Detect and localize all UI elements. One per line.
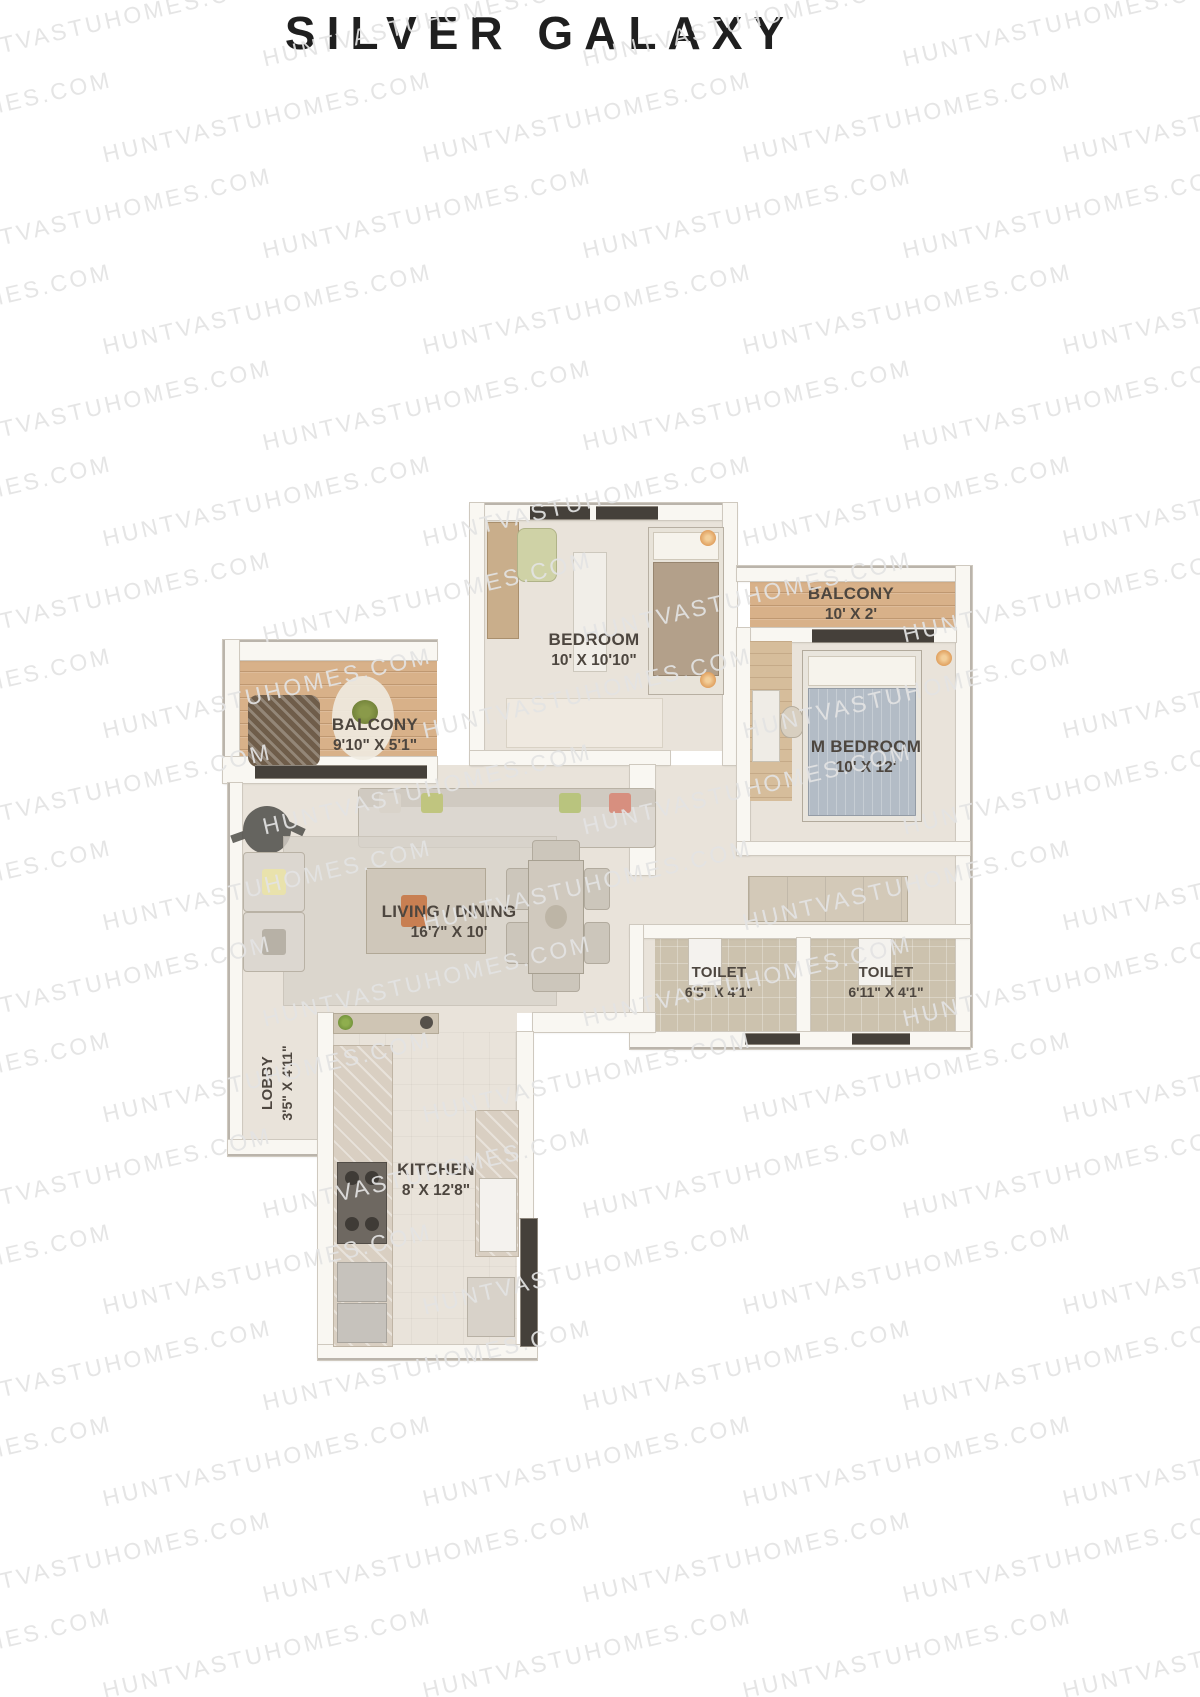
wall <box>318 1345 537 1360</box>
wall <box>737 628 750 855</box>
window-strip <box>812 629 934 643</box>
watermark-text: HUNTVASTUHOMES.COM <box>260 1506 595 1608</box>
lamp <box>700 672 716 688</box>
watermark-text: HUNTVASTUHOMES.COM <box>0 1506 275 1608</box>
desk <box>752 690 780 762</box>
room-name: BEDROOM <box>549 629 640 651</box>
watermark-text: HUNTVASTUHOMES.COM <box>0 162 275 264</box>
watermark-text: HUNTVASTUHOMES.COM <box>260 162 595 264</box>
pillows <box>808 656 916 686</box>
watermark-text: HUNTVASTUHOMES.COM <box>1060 450 1200 552</box>
armchair <box>517 528 557 582</box>
lamp <box>700 530 716 546</box>
watermark-text: HUNTVASTUHOMES.COM <box>1060 834 1200 936</box>
room-label-kitchen: KITCHEN 8' X 12'8" <box>397 1159 475 1201</box>
kitchen-sink <box>479 1178 517 1252</box>
kitchen-entry-counter <box>333 1013 439 1034</box>
pillow <box>262 869 286 895</box>
window-strip <box>520 1218 538 1347</box>
wall <box>470 503 484 765</box>
refrigerator <box>467 1277 515 1337</box>
watermark-text: HUNTVASTUHOMES.COM <box>0 1602 115 1697</box>
wall <box>517 1032 533 1218</box>
room-label-living-dining: LIVING / DINING 16'7" X 10' <box>382 901 517 943</box>
room-name: LIVING / DINING <box>382 901 517 923</box>
room-label-balcony-top: BALCONY 10' X 2' <box>808 583 894 625</box>
wall <box>737 566 970 581</box>
watermark-text: HUNTVASTUHOMES.COM <box>1060 66 1200 168</box>
watermark-text: HUNTVASTUHOMES.COM <box>0 1026 115 1128</box>
watermark-text: HUNTVASTUHOMES.COM <box>1060 258 1200 360</box>
watermark-text: HUNTVASTUHOMES.COM <box>580 354 915 456</box>
room-dims: 6'5" X 4'1" <box>685 983 753 1001</box>
room-label-toilet-right: TOILET 6'11" X 4'1" <box>848 963 923 1001</box>
watermark-text: HUNTVASTUHOMES.COM <box>900 162 1200 264</box>
page-title: SILVER GALAXY <box>0 6 1080 60</box>
room-dims: 10' X 12' <box>811 758 921 778</box>
table-deco <box>545 905 567 929</box>
burner <box>365 1171 379 1185</box>
kitchen-entry-floor <box>437 1013 517 1032</box>
burner <box>345 1217 359 1231</box>
kitchen-cabinet <box>337 1303 387 1343</box>
watermark-text: HUNTVASTUHOMES.COM <box>740 1410 1075 1512</box>
wall <box>470 751 670 765</box>
desk-chair <box>780 706 804 738</box>
plant <box>338 1015 353 1030</box>
room-label-bedroom: BEDROOM 10' X 10'10" <box>549 629 640 671</box>
watermark-text: HUNTVASTUHOMES.COM <box>100 66 435 168</box>
room-name: LOBBY <box>258 1045 278 1120</box>
room-dims: 9'10" X 5'1" <box>332 736 418 756</box>
counter-item <box>420 1016 433 1029</box>
window-strip <box>255 765 427 779</box>
watermark-text: HUNTVASTUHOMES.COM <box>420 258 755 360</box>
dining-chair <box>584 922 610 964</box>
watermark-text: HUNTVASTUHOMES.COM <box>740 1218 1075 1320</box>
wall <box>318 1013 333 1358</box>
gas-stove <box>337 1162 387 1244</box>
bed <box>648 527 724 695</box>
wall <box>797 938 810 1032</box>
wall <box>737 842 970 855</box>
watermark-text: HUNTVASTUHOMES.COM <box>580 1122 915 1224</box>
room-name: KITCHEN <box>397 1159 475 1181</box>
room-name: BALCONY <box>332 714 418 736</box>
watermark-text: HUNTVASTUHOMES.COM <box>0 642 115 744</box>
room-dims: 3'5" X 4'11" <box>278 1045 296 1120</box>
watermark-text: HUNTVASTUHOMES.COM <box>1060 1602 1200 1697</box>
watermark-text: HUNTVASTUHOMES.COM <box>0 66 115 168</box>
watermark-text: HUNTVASTUHOMES.COM <box>1060 1026 1200 1128</box>
room-label-m-bedroom: M BEDROOM 10' X 12' <box>811 736 921 778</box>
watermark-text: HUNTVASTUHOMES.COM <box>900 1122 1200 1224</box>
room-dims: 8' X 12'8" <box>397 1181 475 1201</box>
watermark-text: HUNTVASTUHOMES.COM <box>900 1506 1200 1608</box>
pillow <box>609 793 631 813</box>
wall <box>956 566 972 1047</box>
watermark-text: HUNTVASTUHOMES.COM <box>580 1314 915 1416</box>
burner <box>365 1217 379 1231</box>
pillow <box>421 793 443 813</box>
watermark-text: HUNTVASTUHOMES.COM <box>0 258 115 360</box>
watermark-text: HUNTVASTUHOMES.COM <box>420 66 755 168</box>
wardrobe <box>748 876 908 922</box>
watermark-text: HUNTVASTUHOMES.COM <box>260 354 595 456</box>
lamp <box>936 650 952 666</box>
watermark-text: HUNTVASTUHOMES.COM <box>900 354 1200 456</box>
watermark-text: HUNTVASTUHOMES.COM <box>0 1218 115 1320</box>
watermark-text: HUNTVASTUHOMES.COM <box>0 834 115 936</box>
watermark-text: HUNTVASTUHOMES.COM <box>100 1410 435 1512</box>
room-name: M BEDROOM <box>811 736 921 758</box>
watermark-text: HUNTVASTUHOMES.COM <box>0 450 115 552</box>
watermark-text: HUNTVASTUHOMES.COM <box>100 1602 435 1697</box>
duvet <box>653 562 719 676</box>
watermark-text: HUNTVASTUHOMES.COM <box>0 546 275 648</box>
watermark-text: HUNTVASTUHOMES.COM <box>0 1314 275 1416</box>
watermark-text: HUNTVASTUHOMES.COM <box>580 162 915 264</box>
room-dims: 6'11" X 4'1" <box>848 983 923 1001</box>
wall <box>223 640 437 660</box>
bedroom-rug <box>506 698 663 748</box>
wall <box>630 1032 970 1049</box>
watermark-text: HUNTVASTUHOMES.COM <box>0 1410 115 1512</box>
watermark-text: HUNTVASTUHOMES.COM <box>100 258 435 360</box>
room-dims: 16'7" X 10' <box>382 923 517 943</box>
toilet-door-strip <box>745 1033 800 1045</box>
burner <box>345 1171 359 1185</box>
dining-chair <box>584 868 610 910</box>
wall <box>533 1013 655 1032</box>
wall <box>630 925 970 938</box>
window-strip <box>530 506 590 520</box>
room-name: BALCONY <box>808 583 894 605</box>
pillow <box>379 793 401 813</box>
watermark-text: HUNTVASTUHOMES.COM <box>1060 642 1200 744</box>
watermark-text: HUNTVASTUHOMES.COM <box>900 1314 1200 1416</box>
armchair <box>243 852 305 912</box>
room-dims: 10' X 10'10" <box>549 651 640 671</box>
hall-floor <box>655 765 737 855</box>
room-label-toilet-left: TOILET 6'5" X 4'1" <box>685 963 753 1001</box>
watermark-text: HUNTVASTUHOMES.COM <box>740 66 1075 168</box>
watermark-text: HUNTVASTUHOMES.COM <box>420 1602 755 1697</box>
floor-plan-page: SILVER GALAXY <box>0 0 1200 1697</box>
toilet-door-strip <box>852 1033 910 1045</box>
wardrobe <box>487 522 519 639</box>
pillow <box>559 793 581 813</box>
balcony-seat <box>248 695 320 767</box>
watermark-text: HUNTVASTUHOMES.COM <box>740 1602 1075 1697</box>
armchair <box>243 912 305 972</box>
room-dims: 10' X 2' <box>808 605 894 625</box>
kitchen-cabinet <box>337 1262 387 1302</box>
pillow <box>262 929 286 955</box>
room-name: TOILET <box>685 963 753 983</box>
dining-table <box>528 860 584 974</box>
watermark-text: HUNTVASTUHOMES.COM <box>740 450 1075 552</box>
watermark-text: HUNTVASTUHOMES.COM <box>0 354 275 456</box>
room-label-balcony-left: BALCONY 9'10" X 5'1" <box>332 714 418 756</box>
wall <box>723 503 737 765</box>
watermark-text: HUNTVASTUHOMES.COM <box>1060 1410 1200 1512</box>
watermark-text: HUNTVASTUHOMES.COM <box>100 450 435 552</box>
window-strip <box>596 506 658 520</box>
watermark-text: HUNTVASTUHOMES.COM <box>1060 1218 1200 1320</box>
watermark-text: HUNTVASTUHOMES.COM <box>740 258 1075 360</box>
room-name: TOILET <box>848 963 923 983</box>
watermark-text: HUNTVASTUHOMES.COM <box>420 1410 755 1512</box>
room-label-lobby: LOBBY 3'5" X 4'11" <box>258 1045 296 1120</box>
watermark-text: HUNTVASTUHOMES.COM <box>580 1506 915 1608</box>
